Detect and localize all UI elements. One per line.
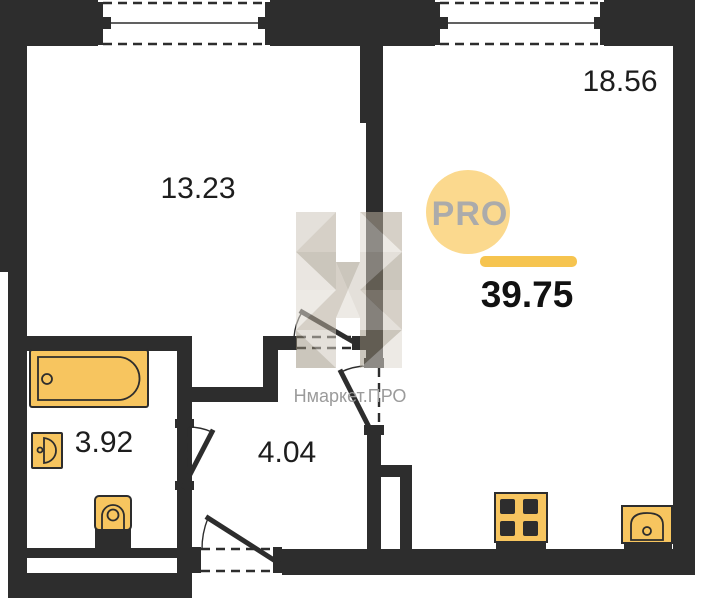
area-label-room-18-56: 18.56 [582, 65, 657, 98]
door-entry [201, 518, 277, 571]
logo-underline [480, 256, 577, 267]
area-label-room-13-23: 13.23 [160, 172, 235, 205]
window-right [435, 2, 605, 45]
brand-watermark-text: Нмаркет.ПРО [294, 386, 407, 406]
pro-logo-text: PRO [432, 195, 509, 233]
kitchen-sink [622, 506, 672, 550]
stove [495, 493, 547, 550]
floorplan-page: PRO 39.75 13.23 18.56 3.92 4.04 Нмаркет.… [0, 0, 701, 600]
area-label-bathroom: 3.92 [75, 426, 133, 459]
bathtub [30, 350, 148, 407]
watermark-h-logo [296, 212, 402, 368]
floorplan-canvas: PRO 39.75 13.23 18.56 3.92 4.04 Нмаркет.… [0, 0, 701, 600]
area-label-hallway: 4.04 [258, 436, 316, 469]
pro-logo: PRO [426, 170, 577, 267]
bathroom-sink [32, 433, 62, 468]
total-area-label: 39.75 [481, 274, 574, 315]
toilet [95, 496, 131, 548]
window-left [98, 2, 270, 45]
